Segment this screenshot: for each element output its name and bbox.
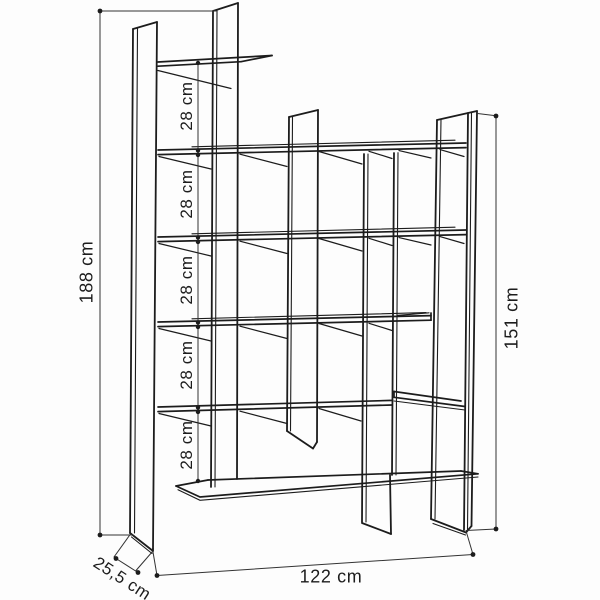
dimension-label-gap-3: 28 cm — [177, 255, 197, 304]
dimension-label-width: 122 cm — [300, 567, 363, 588]
divider-c — [362, 154, 391, 534]
dimension-label-right-height: 151 cm — [502, 287, 523, 350]
divider-a — [211, 3, 238, 487]
left-side-panel — [130, 22, 157, 554]
shelf2-perspective-edges — [159, 150, 464, 169]
dimension-label-gap-1: 28 cm — [177, 81, 197, 130]
dimension-label-total-height: 188 cm — [77, 241, 98, 304]
shelf3-perspective-edges — [159, 237, 464, 256]
furniture-dimension-diagram: 188 cm 28 cm 28 cm 28 cm 28 cm 28 cm 151… — [0, 0, 600, 600]
dimension-label-gap-2: 28 cm — [177, 169, 197, 218]
dimension-lines — [100, 11, 496, 576]
dimension-label-gap-5: 28 cm — [177, 420, 197, 469]
divider-b — [287, 110, 318, 449]
dimension-label-gap-4: 28 cm — [177, 340, 197, 389]
